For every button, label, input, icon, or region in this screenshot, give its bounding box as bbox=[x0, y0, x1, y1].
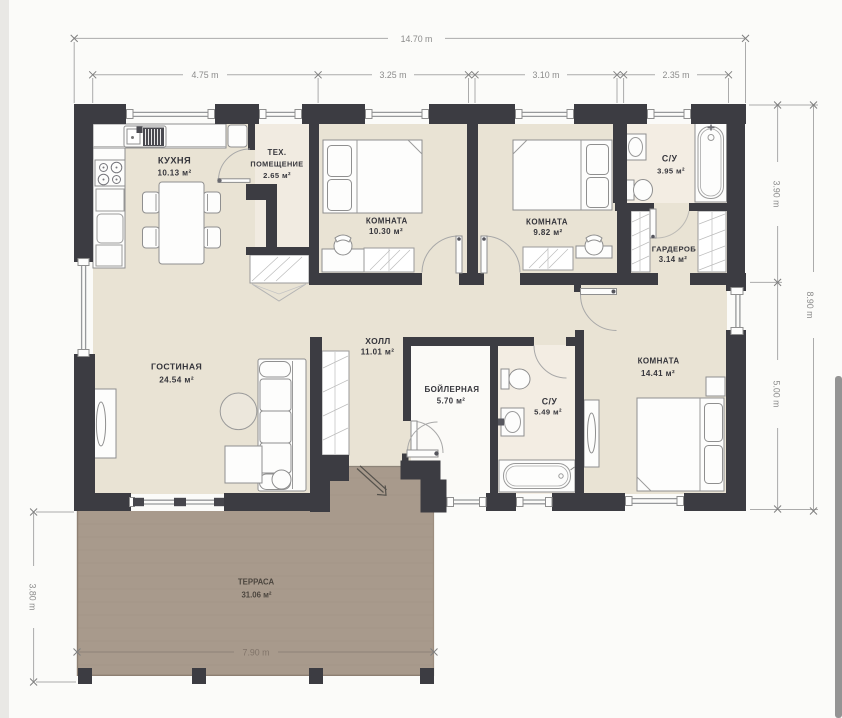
svg-text:3.95 м²: 3.95 м² bbox=[657, 167, 685, 176]
svg-text:БОЙЛЕРНАЯ: БОЙЛЕРНАЯ bbox=[425, 385, 480, 394]
svg-text:ГАРДЕРОБ: ГАРДЕРОБ bbox=[652, 245, 696, 254]
svg-text:11.01 м²: 11.01 м² bbox=[361, 348, 395, 357]
svg-text:2.65 м²: 2.65 м² bbox=[263, 171, 291, 180]
svg-text:10.13 м²: 10.13 м² bbox=[157, 169, 191, 178]
svg-text:С/У: С/У bbox=[542, 397, 558, 407]
svg-text:ТЕХ.: ТЕХ. bbox=[268, 148, 287, 157]
svg-text:ГОСТИНАЯ: ГОСТИНАЯ bbox=[151, 362, 202, 372]
svg-text:5.00 m: 5.00 m bbox=[772, 381, 782, 408]
svg-text:14.70 m: 14.70 m bbox=[401, 34, 433, 44]
svg-text:4.75 m: 4.75 m bbox=[192, 70, 219, 80]
svg-text:7.90 m: 7.90 m bbox=[243, 648, 270, 658]
svg-text:2.35 m: 2.35 m bbox=[663, 70, 690, 80]
svg-text:3.80 m: 3.80 m bbox=[28, 584, 38, 611]
svg-text:КОМНАТА: КОМНАТА bbox=[526, 218, 568, 227]
svg-text:ХОЛЛ: ХОЛЛ bbox=[365, 336, 390, 346]
svg-text:3.14 м²: 3.14 м² bbox=[659, 255, 688, 264]
svg-text:С/У: С/У bbox=[662, 154, 678, 164]
svg-text:9.82 м²: 9.82 м² bbox=[533, 228, 562, 237]
svg-text:КОМНАТА: КОМНАТА bbox=[638, 357, 680, 366]
svg-text:3.90 m: 3.90 m bbox=[772, 181, 782, 208]
svg-text:5.49 м²: 5.49 м² bbox=[534, 408, 562, 417]
svg-text:31.06 м²: 31.06 м² bbox=[241, 591, 271, 600]
svg-text:ПОМЕЩЕНИЕ: ПОМЕЩЕНИЕ bbox=[250, 160, 303, 169]
svg-text:ТЕРРАСА: ТЕРРАСА bbox=[238, 578, 275, 587]
svg-text:24.54 м²: 24.54 м² bbox=[159, 376, 194, 385]
svg-text:5.70 м²: 5.70 м² bbox=[437, 397, 466, 406]
svg-text:3.25 m: 3.25 m bbox=[380, 70, 407, 80]
svg-text:КУХНЯ: КУХНЯ bbox=[158, 156, 191, 166]
svg-text:КОМНАТА: КОМНАТА bbox=[366, 217, 408, 226]
svg-text:8.90 m: 8.90 m bbox=[805, 292, 815, 319]
svg-text:10.30 м²: 10.30 м² bbox=[369, 227, 403, 236]
svg-text:3.10 m: 3.10 m bbox=[533, 70, 560, 80]
svg-text:14.41 м²: 14.41 м² bbox=[641, 369, 675, 378]
